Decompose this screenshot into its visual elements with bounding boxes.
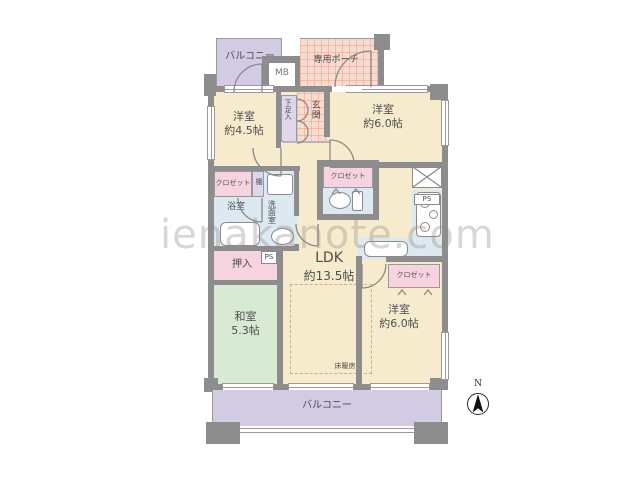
porch-wall: [378, 34, 384, 88]
wall: [324, 88, 330, 137]
washing-machine-pan: [267, 174, 293, 195]
window: [207, 106, 215, 160]
entrance-label: 玄関: [308, 100, 320, 120]
wall: [208, 166, 300, 171]
entrance-step-line: [283, 141, 330, 143]
shoe-box-label: 下足入: [283, 99, 292, 120]
closet-b-label: クロゼット: [323, 172, 373, 181]
wall: [208, 280, 283, 285]
compass-icon: [467, 393, 489, 415]
private-porch-label: 専用ポーチ: [300, 55, 372, 67]
shelf-label: 棚: [254, 178, 263, 185]
duct-box: [412, 166, 442, 188]
west-room-b-label: 洋室 約6.0帖: [343, 103, 423, 132]
floor-plan: バルコニー MB 専用ポーチ 玄関 下足入 洋室 約4.5帖 洋室 約6.0帖 …: [0, 0, 640, 480]
balcony-pier: [414, 422, 448, 444]
toilet-bowl: [329, 192, 351, 209]
closet-c-label: クロゼット: [388, 271, 440, 280]
window: [441, 100, 449, 146]
watermark: ienakanote.com: [160, 212, 490, 258]
wall: [373, 160, 379, 220]
wall-pillar: [430, 84, 448, 100]
wall: [330, 162, 448, 168]
wall: [277, 251, 283, 384]
japanese-room-label: 和室 5.3帖: [214, 310, 277, 339]
window: [441, 332, 449, 380]
pipe-space-b-label: PS: [414, 195, 440, 204]
closet-a-label: クロゼット: [214, 179, 252, 188]
wall: [294, 171, 299, 216]
wall-pillar: [204, 74, 216, 96]
balcony-bottom-label: バルコニー: [262, 399, 392, 412]
window: [224, 85, 274, 93]
west-room-c-label: 洋室 約6.0帖: [359, 303, 439, 332]
balcony-pier: [206, 422, 240, 444]
compass-north-label: N: [462, 379, 494, 389]
wall: [276, 92, 281, 148]
entry-door-opening: [332, 86, 362, 92]
meter-box-label: MB: [268, 68, 296, 80]
wall: [356, 256, 362, 384]
west-room-a-label: 洋室 約4.5帖: [214, 110, 274, 139]
balcony-rail: [238, 428, 416, 433]
toilet-tank: [352, 191, 363, 211]
